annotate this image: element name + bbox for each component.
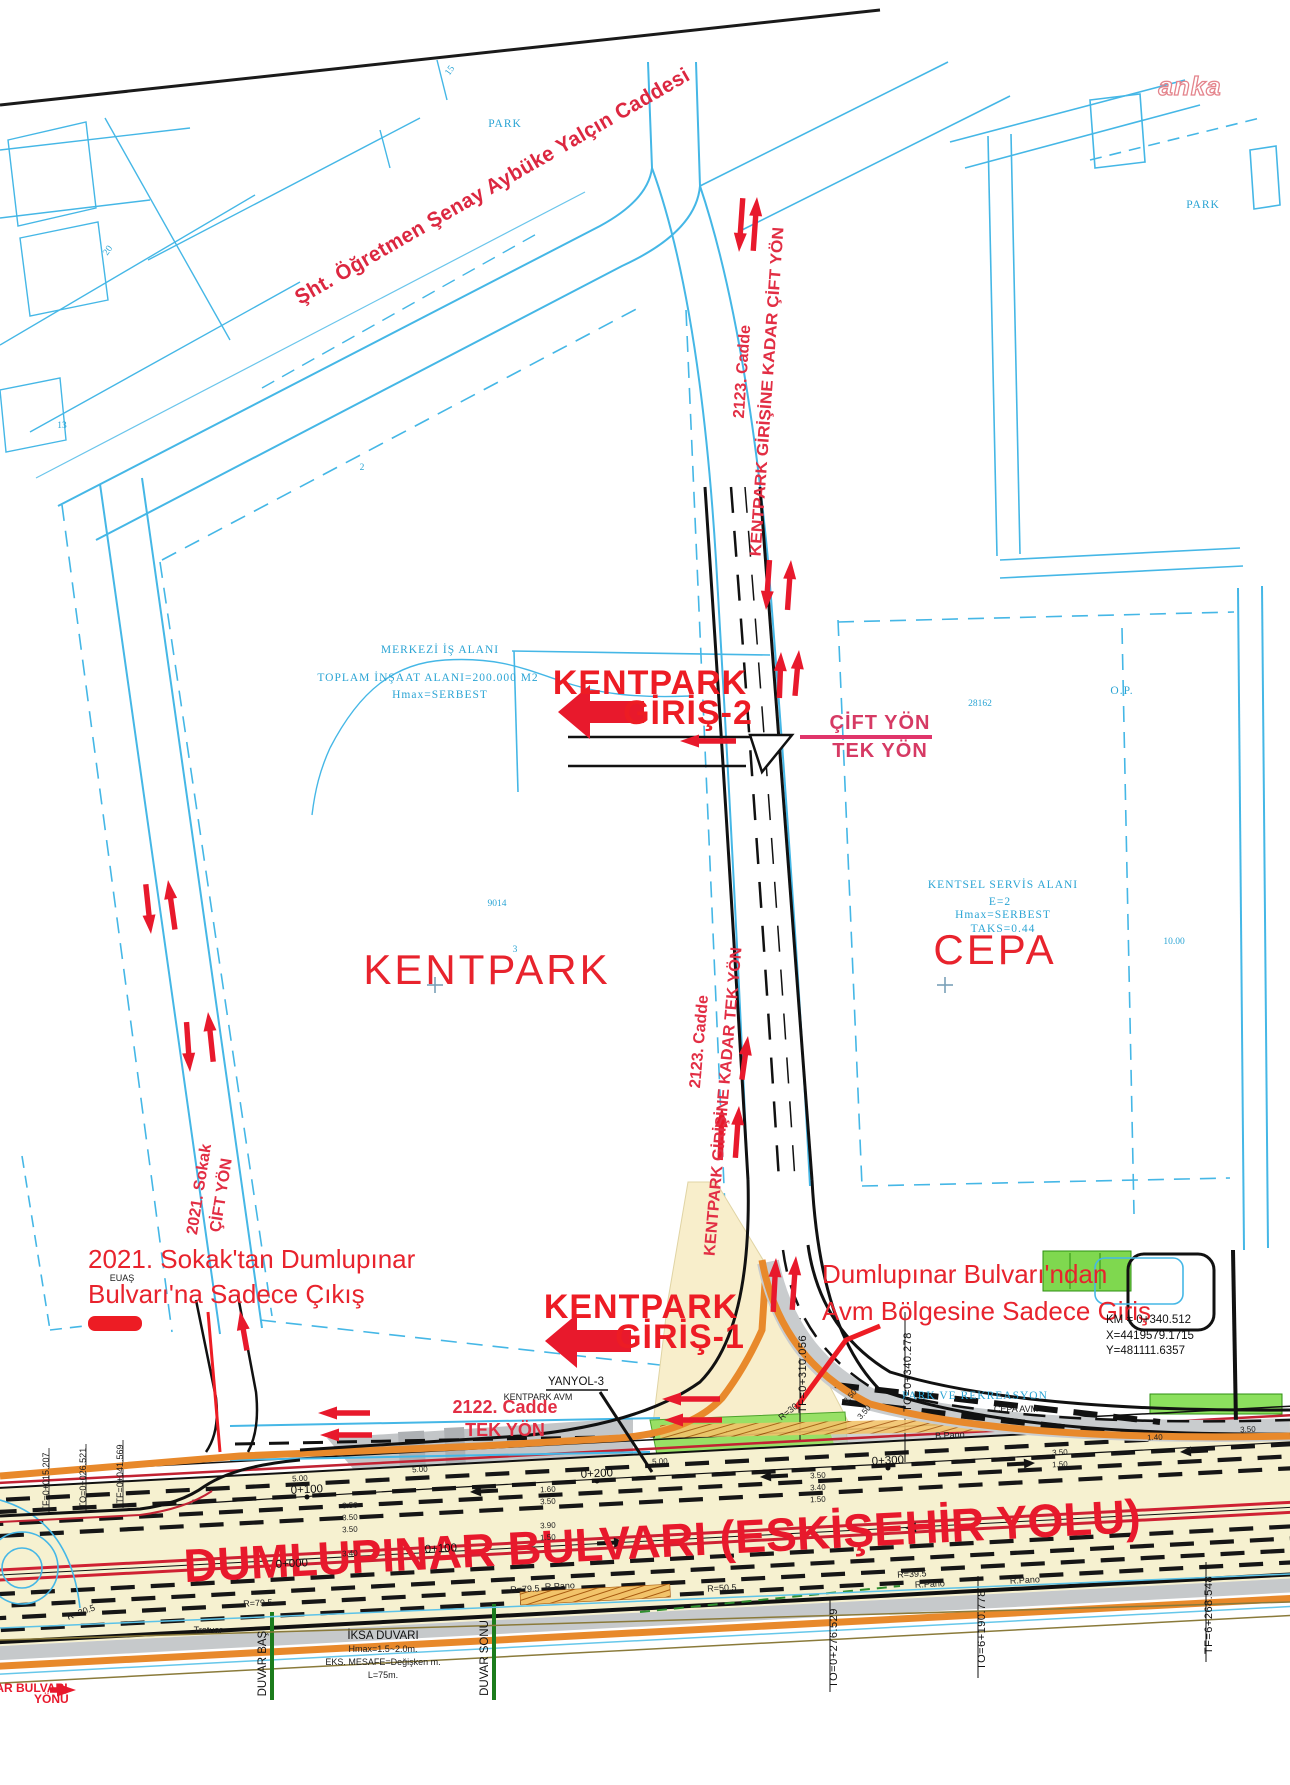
giris2-line2: GİRİŞ-2 xyxy=(623,694,753,732)
rpano-3: R.Pano xyxy=(1010,1574,1041,1586)
taks: TAKS=0.44 xyxy=(971,923,1036,935)
park-top: PARK xyxy=(488,118,522,130)
road-2123-cift-yon: KENTPARK GİRİŞİNE KADAR ÇİFT YÖN xyxy=(746,226,788,557)
park-right: PARK xyxy=(1186,199,1220,211)
r-505: R=50.5 xyxy=(707,1582,737,1594)
lane-w: 3.50 xyxy=(1240,1425,1257,1435)
red-direction-arrow xyxy=(234,1310,254,1352)
duvar-basi: DUVAR BAŞI xyxy=(257,1628,269,1697)
red-highlight-bar xyxy=(88,1316,142,1331)
lane-w: 5.00 xyxy=(412,1465,429,1475)
iksa-3: EKS. MESAFE=Değişken m. xyxy=(325,1657,440,1667)
lane-w: 3.90 xyxy=(540,1521,557,1531)
r-795a: R=79.5 xyxy=(243,1597,273,1609)
duvar-sonu: DUVAR SONU xyxy=(479,1620,491,1696)
coord-x: X=4419579.1715 xyxy=(1106,1330,1194,1342)
anka-logo: anka xyxy=(1158,71,1221,101)
park-rekreasyon: PARK VE REKREASYON xyxy=(902,1390,1048,1402)
cadastral-lines-topright xyxy=(700,62,1280,1250)
rpano-1: R.Pano xyxy=(545,1580,576,1592)
road-2123-upper: 2123. Cadde xyxy=(731,324,754,418)
street-senay-aybuke: Şht. Öğretmen Şenay Aybüke Yalçın Caddes… xyxy=(291,63,694,309)
yanyol-3: YANYOL-3 xyxy=(548,1376,604,1388)
lane-w: 5.00 xyxy=(652,1457,669,1467)
parcel-2: 2 xyxy=(360,463,365,473)
red-direction-arrow xyxy=(202,1011,220,1062)
note-avm-line2: Avm Bölgesine Sadece Giriş xyxy=(822,1296,1151,1326)
euas: EUAŞ xyxy=(110,1273,135,1283)
kentpark-area: KENTPARK xyxy=(363,946,610,993)
chainage-0100b: 0+100 xyxy=(424,1542,457,1556)
road-2122-tek-yon: TEK YÖN xyxy=(465,1420,545,1440)
red-direction-arrow xyxy=(781,560,797,611)
lane-w: 3.50 xyxy=(1052,1448,1069,1458)
lane-w: 3.50 xyxy=(540,1497,557,1507)
chainage-0300: 0+300 xyxy=(871,1454,904,1468)
km-340: KM = 0+340.512 xyxy=(1106,1314,1191,1326)
rpano-2: R.Pano xyxy=(915,1578,946,1590)
lane-w: 3.50 xyxy=(342,1513,359,1523)
sta-to-340: TO=0+340.278 xyxy=(902,1332,914,1412)
lane-w: 3.40 xyxy=(810,1483,827,1493)
hmax-serbest-2: Hmax=SERBEST xyxy=(955,909,1051,921)
parcel-kentpark-boundary xyxy=(22,306,770,1365)
chainage-0100: 0+100 xyxy=(290,1483,323,1497)
red-direction-arrow xyxy=(747,197,764,252)
toplam-insaat: TOPLAM İNŞAAT ALANI=200.000 M2 xyxy=(317,670,538,684)
red-direction-arrow xyxy=(760,560,776,611)
lane-w: 3.50 xyxy=(810,1471,827,1481)
bpano: B.Pano xyxy=(935,1429,965,1441)
lane-w: 3.50 xyxy=(342,1525,359,1535)
lane-w: 1.60 xyxy=(540,1485,557,1495)
red-direction-arrow xyxy=(733,198,750,253)
parcel-15: 15 xyxy=(444,64,458,78)
red-direction-arrow xyxy=(139,884,157,935)
red-direction-arrow xyxy=(789,649,806,696)
lane-w: 1.50 xyxy=(1052,1460,1069,1470)
dim-1000: 10.00 xyxy=(1163,937,1185,947)
lane-w: 1.40 xyxy=(1147,1433,1164,1443)
sta-tf-041: TF=0+041.569 xyxy=(115,1444,125,1503)
lane-w: 1.50 xyxy=(810,1495,827,1505)
tek-yon-label: TEK YÖN xyxy=(832,739,928,762)
sta-to-190: TO=6+190.778 xyxy=(976,1590,988,1670)
iksa-4: L=75m. xyxy=(368,1670,398,1680)
r-795b: R=79.5 xyxy=(510,1583,540,1595)
cepa-avm: CEPA AVM xyxy=(994,1404,1038,1414)
kentsel-servis: KENTSEL SERVİS ALANI xyxy=(928,877,1078,891)
parcel-13: 13 xyxy=(57,421,67,431)
cross-marker-cepa xyxy=(937,977,953,993)
cift-yon-label: ÇİFT YÖN xyxy=(830,711,931,734)
chainage-0200: 0+200 xyxy=(580,1467,613,1481)
parcel-20: 20 xyxy=(102,244,116,258)
lane-w: 1.50 xyxy=(540,1533,557,1543)
road-2123-lower: 2123. Cadde xyxy=(687,994,712,1089)
parcel-3: 3 xyxy=(513,945,518,955)
lane-w: 3.50 xyxy=(342,1501,359,1511)
parcel-28162: 28162 xyxy=(968,699,992,709)
iksa-2: Hmax=1.5~2.0m. xyxy=(348,1644,417,1654)
red-direction-arrow xyxy=(162,879,182,930)
lane-w: 5.00 xyxy=(292,1474,309,1484)
e2: E=2 xyxy=(989,896,1011,908)
kentpark-avm: KENTPARK AVM xyxy=(504,1392,573,1402)
red-direction-arrow xyxy=(318,1407,370,1420)
sta-tf-310: TF=0+310.056 xyxy=(797,1335,809,1413)
sta-tf-268: TF=6+268.548 xyxy=(1203,1576,1215,1654)
road-2123-tek-yon: KENTPARK GİRİŞİNE KADAR TEK YÖN xyxy=(700,946,746,1256)
giris1-line2: GİRİŞ-1 xyxy=(615,1318,745,1356)
sta-tf-015: TF=0+015.207 xyxy=(41,1452,51,1511)
note-avm-line1: Dumlupınar Bulvarı'ndan xyxy=(822,1259,1107,1289)
lane-w: 3.40 xyxy=(342,1549,359,1559)
note-sokak-line2: Bulvarı'na Sadece Çıkış xyxy=(88,1279,365,1309)
parcel-9014: 9014 xyxy=(488,899,507,909)
r-395: R=39.5 xyxy=(897,1568,927,1580)
merkezi-is-alani: MERKEZİ İŞ ALANI xyxy=(381,642,499,656)
sta-to-026: TO=0+026.521 xyxy=(78,1448,88,1508)
red-direction-arrow xyxy=(735,1035,754,1080)
coord-y: Y=481111.6357 xyxy=(1106,1345,1185,1357)
op: O.P. xyxy=(1110,685,1133,697)
hmax-serbest-1: Hmax=SERBEST xyxy=(392,689,488,701)
note-sokak-line1: 2021. Sokak'tan Dumlupınar xyxy=(88,1244,416,1274)
map-canvas: Şht. Öğretmen Şenay Aybüke Yalçın Caddes… xyxy=(0,0,1290,1785)
sta-to-276: TO=0+276.529 xyxy=(828,1608,840,1688)
iksa-1: İKSA DUVARI xyxy=(347,1629,418,1642)
dumlupinar-yonu-2: YÖNÜ xyxy=(34,1691,69,1706)
trotuar: Trotuar xyxy=(194,1625,223,1635)
chainage-0000: 0+000 xyxy=(275,1557,308,1571)
